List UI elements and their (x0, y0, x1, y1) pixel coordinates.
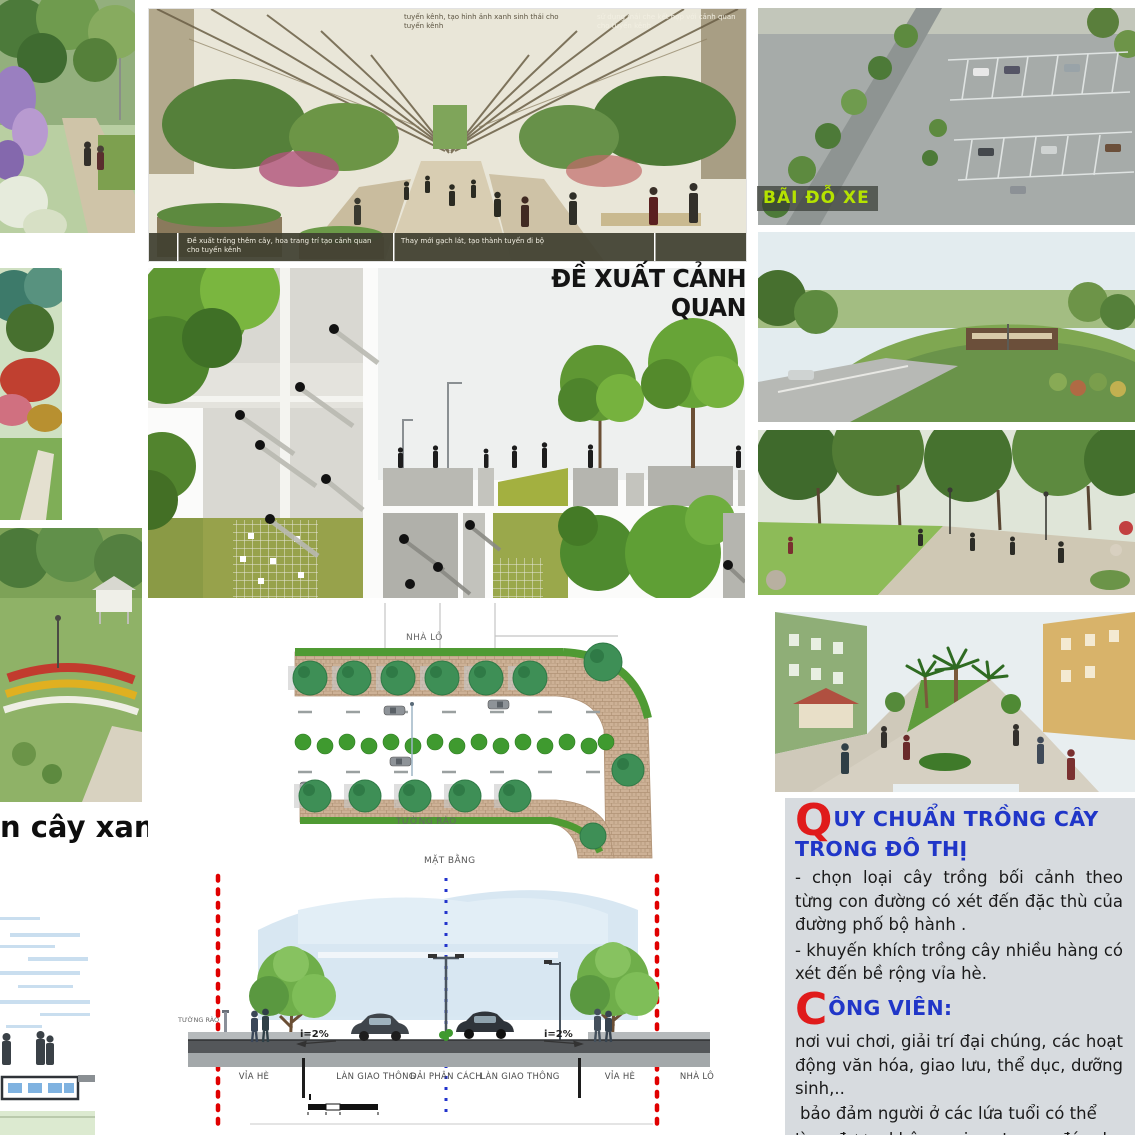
canal-note-bottom-left: Đề xuất trồng thêm cây, hoa trang trí tạ… (187, 237, 382, 255)
standards-bullet-1: - chọn loại cây trồng bối cảnh theo từng… (795, 866, 1123, 936)
section-slope-left: i=2% (300, 1029, 329, 1040)
dropcap-c: C (795, 984, 827, 1035)
section-slope-right: i=2% (544, 1029, 573, 1040)
park-paragraph-3: tìm được không gian trong đó cho mình, t… (795, 1128, 1123, 1135)
zone-label-dai-phan-cach: DẢI PHÂN CÁCH (410, 1072, 482, 1082)
zone-label-nha-lo: NHÀ LÔ (680, 1072, 714, 1082)
standards-heading: QUY CHUẨN TRỒNG CÂY TRONG ĐÔ THỊ (795, 806, 1123, 862)
photo-garden-strip (0, 268, 62, 520)
canal-note-bottom-right: Thay mới gạch lát, tạo thành tuyến đi bộ (401, 237, 561, 246)
zone-label-via-he-right: VỈA HÈ (605, 1072, 635, 1082)
park-paragraph-2: bảo đảm người ở các lứa tuổi có thể (795, 1102, 1123, 1125)
water-cells (8, 1083, 74, 1093)
render-park-entrance (758, 232, 1135, 422)
photo-park-walkway (0, 0, 135, 233)
street-technical-diagram (148, 600, 745, 1135)
canal-note-top-left: tuyến kênh, tạo hình ảnh xanh sinh thái … (404, 13, 572, 31)
render-canal-promenade: tuyến kênh, tạo hình ảnh xanh sinh thái … (148, 8, 747, 262)
park-paragraph-1: nơi vui chơi, giải trí đại chúng, các ho… (795, 1030, 1123, 1100)
park-heading: CÔNG VIÊN: (795, 995, 1123, 1026)
standards-panel: QUY CHUẨN TRỒNG CÂY TRONG ĐÔ THỊ - chọn … (785, 798, 1135, 1135)
parking-label: BÃI ĐỖ XE (757, 186, 878, 211)
zone-label-lan-giao-thong-right: LÀN GIAO THÔNG (480, 1072, 559, 1082)
render-residential-street (775, 612, 1135, 792)
section-label-tuong-rao: TƯỜNG RÀO (178, 1016, 219, 1024)
standards-bullet-2: - khuyến khích trồng cây nhiều hàng có x… (795, 939, 1123, 986)
zone-label-lan-giao-thong-left: LÀN GIAO THÔNG (336, 1072, 415, 1082)
presentation-board: tuyến kênh, tạo hình ảnh xanh sinh thái … (0, 0, 1135, 1135)
sketch-canal-section (0, 905, 95, 1135)
zone-label-via-he-left: VỈA HÈ (239, 1072, 269, 1082)
canal-note-top-right: sử dụng mái che kết hợp với cảnh quan ch… (597, 13, 739, 31)
photo-park-garden (0, 528, 142, 802)
landscape-proposal-title: ĐỀ XUẤT CẢNH QUAN (484, 264, 746, 322)
plan-label-nha-lo: NHÀ LÔ (406, 633, 443, 643)
plan-label-mat-bang: MẶT BẰNG (424, 856, 476, 866)
render-park-pathway (758, 430, 1135, 595)
plan-label-tuong-rao: TƯỜNG RÀO (396, 817, 457, 827)
